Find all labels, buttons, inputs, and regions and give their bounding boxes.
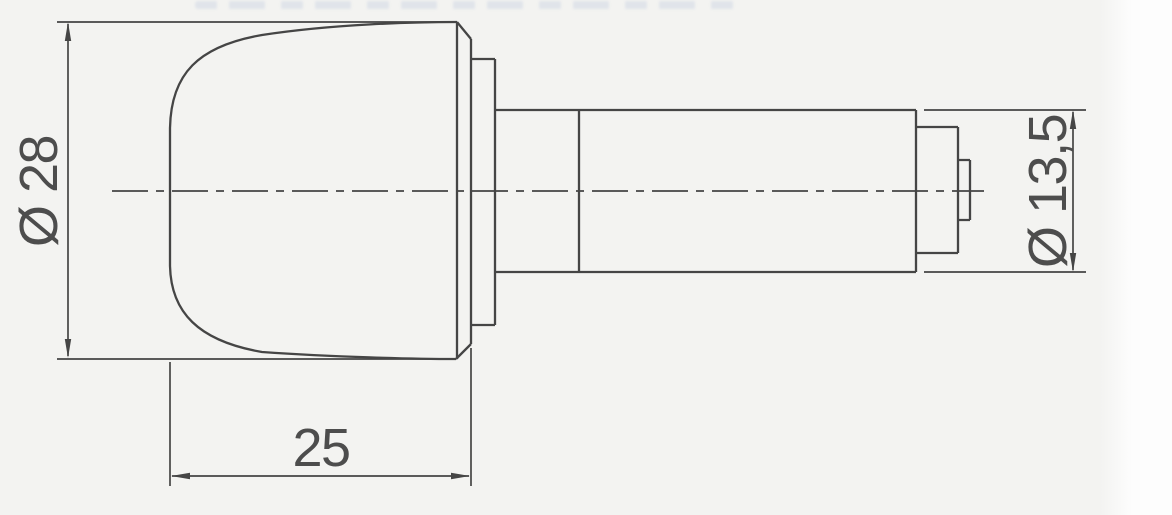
cap-chamfer-bottom [456, 344, 471, 359]
arrowhead-up-icon [65, 22, 71, 41]
dimension-label-end-diameter: Ø 13,5 [1018, 115, 1078, 268]
dimension-cap-length: 25 [170, 348, 471, 486]
drawing-sheet: Ø 28 25 Ø 13,5 [0, 0, 1172, 515]
arrowhead-down-icon [65, 339, 71, 358]
arrowhead-left-icon [171, 473, 190, 479]
dimension-cap-diameter: Ø 28 [9, 22, 71, 358]
part-side-view [57, 22, 984, 359]
arrowhead-right-icon [451, 473, 470, 479]
end-step-large [916, 127, 958, 253]
scan-right-margin [1100, 0, 1172, 515]
end-steps-outline [916, 127, 970, 253]
cap-bottom-curve [170, 266, 456, 359]
end-step-small [958, 160, 970, 220]
dimension-label-cap-length: 25 [292, 418, 349, 478]
cap-chamfer-top [457, 22, 471, 39]
flange-outline [471, 59, 495, 325]
dimension-label-cap-diameter: Ø 28 [9, 136, 69, 247]
dimension-end-diameter: Ø 13,5 [924, 110, 1086, 272]
technical-drawing: Ø 28 25 Ø 13,5 [0, 0, 1172, 515]
cap-top-curve [170, 22, 457, 128]
